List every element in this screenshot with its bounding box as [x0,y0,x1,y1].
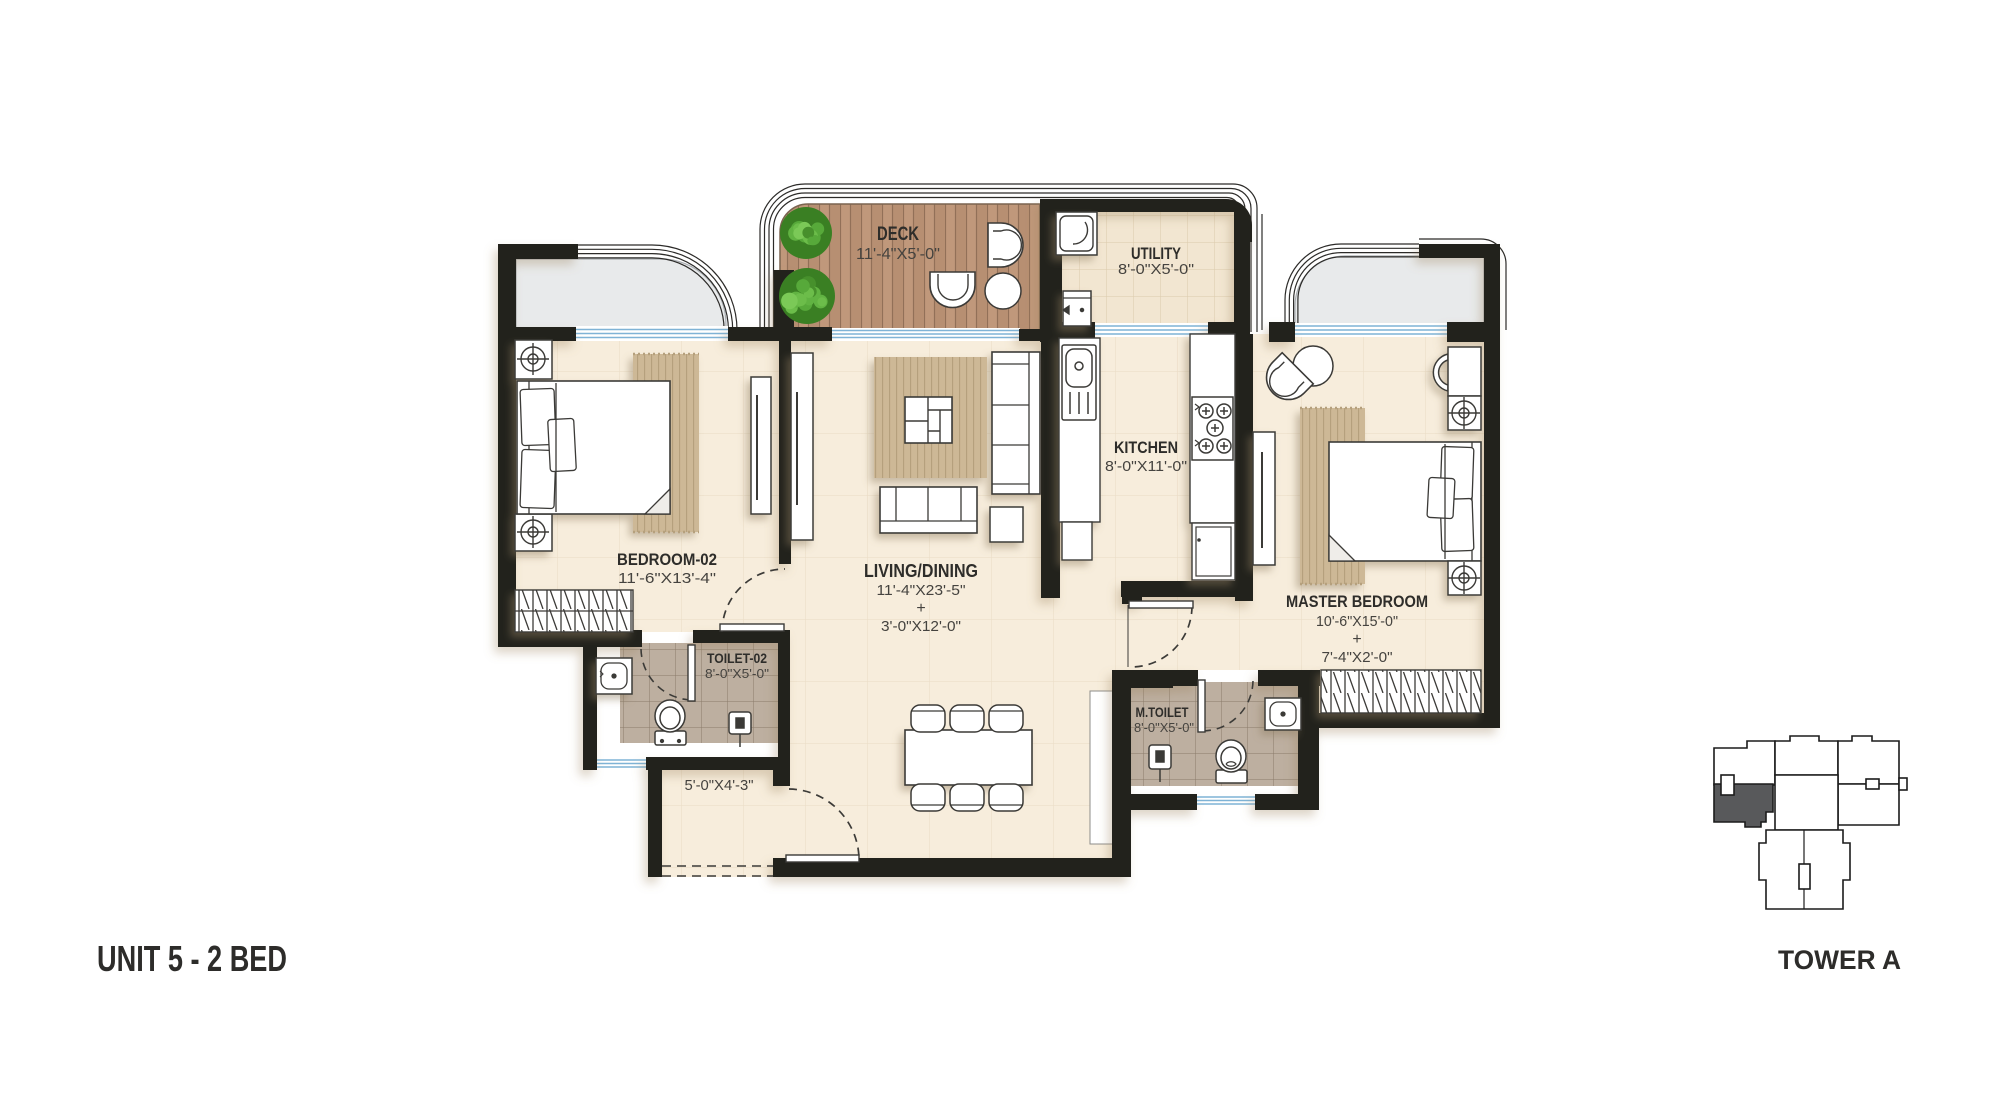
svg-text:5'-0"X4'-3": 5'-0"X4'-3" [685,778,754,794]
svg-text:7'-4"X2'-0": 7'-4"X2'-0" [1322,649,1393,666]
svg-text:LIVING/DINING: LIVING/DINING [864,561,978,581]
svg-text:+: + [1352,631,1361,648]
svg-text:BEDROOM-02: BEDROOM-02 [617,550,717,569]
svg-text:TOWER A: TOWER A [1778,945,1901,975]
svg-text:8'-0"X11'-0": 8'-0"X11'-0" [1105,458,1187,475]
svg-text:TOILET-02: TOILET-02 [707,650,767,666]
svg-text:10'-6"X15'-0": 10'-6"X15'-0" [1316,613,1398,630]
svg-text:8'-0"X5'-0": 8'-0"X5'-0" [705,666,769,681]
svg-text:11'-4"X5'-0": 11'-4"X5'-0" [856,246,940,263]
svg-text:MASTER BEDROOM: MASTER BEDROOM [1286,592,1428,611]
svg-text:11'-6"X13'-4": 11'-6"X13'-4" [618,570,716,587]
svg-text:M.TOILET: M.TOILET [1136,704,1189,720]
svg-text:KITCHEN: KITCHEN [1114,438,1178,457]
svg-text:11'-4"X23'-5": 11'-4"X23'-5" [877,582,966,599]
svg-text:+: + [916,600,925,617]
svg-text:UNIT 5 - 2 BED: UNIT 5 - 2 BED [97,938,287,979]
svg-text:3'-0"X12'-0": 3'-0"X12'-0" [881,618,961,635]
svg-text:DECK: DECK [877,224,919,245]
svg-text:8'-0"X5'-0": 8'-0"X5'-0" [1134,720,1194,735]
svg-text:8'-0"X5'-0": 8'-0"X5'-0" [1118,261,1194,278]
